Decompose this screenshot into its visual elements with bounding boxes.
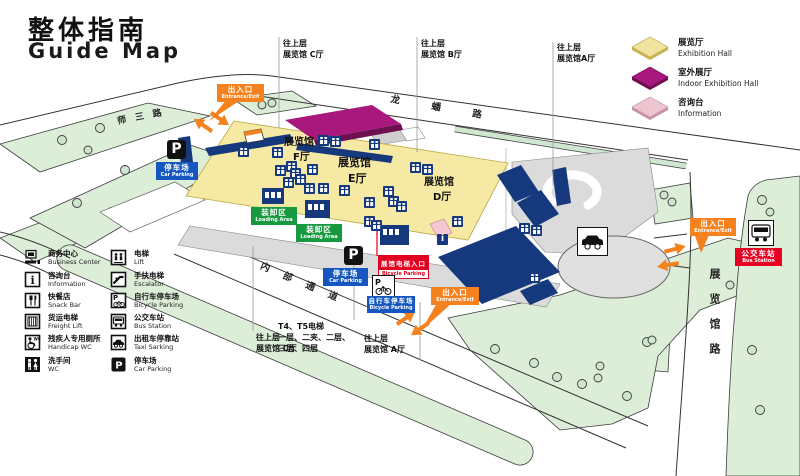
svg-text:WC: WC (34, 337, 41, 342)
facility-marker-icon (275, 165, 286, 176)
legend-label-en: Information (678, 109, 721, 119)
facility-marker-icon (318, 135, 329, 146)
snack-bar-icon (24, 292, 41, 309)
exhibition-hall-swatch (628, 34, 672, 62)
legend-item-car-parking: P 停车场Car Parking (110, 356, 171, 374)
loading-dock-icon (262, 188, 284, 204)
bus-icon (748, 220, 774, 246)
facility-marker-icon (422, 164, 433, 175)
road-label-zhanlanguanlu: 展览馆路 (706, 268, 722, 368)
car-icon (577, 227, 608, 256)
legend-item-bus-station: 公交车站Bus Station (110, 313, 171, 331)
legend-item-bicycle-parking: P 自行车停车场Bicycle Parking (110, 292, 183, 310)
hall-label-e: 展览馆 E厅 (338, 154, 371, 186)
information-swatch (628, 94, 672, 122)
freight-lift-icon (24, 313, 41, 330)
roundabout (558, 236, 670, 298)
car-parking-icon: P (110, 356, 127, 373)
bus-station-icon (110, 313, 127, 330)
legend-item-escalator: 手扶电梯Escalator (110, 271, 164, 289)
facility-marker-icon (371, 220, 382, 231)
car-parking-sign-center: 停车场 Car Parking (323, 268, 368, 286)
legend-item-business-center: 商务中心Business Center (24, 249, 101, 267)
facility-marker-icon (410, 162, 421, 173)
legend-label-en: Indoor Exhibition Hall (678, 79, 758, 89)
svg-text:i: i (31, 274, 35, 287)
facility-marker-icon (318, 183, 329, 194)
information-marker-icon: i (437, 234, 448, 245)
legend-label-zh: 咨询台 (678, 98, 721, 109)
loading-area-sign-center: 装卸区 Loading Area (296, 224, 342, 242)
upper-label-a-top: 往上层 展览馆A厅 (557, 42, 595, 64)
loading-dock-icon (305, 200, 330, 218)
bicycle-parking-icon: P (372, 275, 395, 298)
hall-label-d: 展览馆 D厅 (424, 173, 454, 203)
facility-marker-icon (330, 136, 341, 147)
facility-marker-icon (369, 139, 380, 150)
facility-marker-icon (452, 216, 463, 227)
lift-icon (110, 249, 127, 266)
legend-item-lift: 电梯Lift (110, 249, 149, 267)
facility-marker-icon (272, 147, 283, 158)
information-icon: i (24, 271, 41, 288)
entrance-sign-east: 出入口 Entrance/Exit (690, 218, 736, 236)
upper-label-a-bottom: 往上层 展览馆 A厅 (364, 333, 405, 355)
legend-item-handicap-wc: WC 残疾人专用厕所Handicap WC (24, 334, 101, 352)
legend-item-outdoor-exhibition: 室外展厅 Indoor Exhibition Hall (628, 64, 758, 92)
escalator-icon (110, 271, 127, 288)
legend-item-wc: 洗手间WC (24, 356, 71, 374)
legend-item-snack-bar: 快餐店Snack Bar (24, 292, 81, 310)
parking-p-sign: P (344, 246, 363, 265)
facility-marker-icon (307, 164, 318, 175)
facility-marker-icon (519, 223, 530, 234)
wc-icon (24, 356, 41, 373)
facility-marker-icon (364, 197, 375, 208)
legend-item-information: i 咨询台Information (24, 271, 86, 289)
upper-label-c-top: 往上层 展览馆 C厅 (283, 38, 324, 60)
legend-item-exhibition-hall: 展览厅 Exhibition Hall (628, 34, 732, 62)
legend-label-zh: 展览厅 (678, 38, 732, 49)
elevator-note: T4、T5电梯 一层、二夹、二层、 三层、四层 (278, 321, 350, 354)
business-center-icon (24, 249, 41, 266)
facility-marker-icon (238, 146, 249, 157)
guide-map-page: 整体指南 Guide Map 展览厅 Exhibition Hall 室外展厅 … (0, 0, 800, 476)
outdoor-exhibition-swatch (628, 64, 672, 92)
legend-label-zh: 室外展厅 (678, 68, 758, 79)
svg-text:P: P (375, 278, 381, 287)
legend-item-freight-lift: 货运电梯Freight Lift (24, 313, 83, 331)
page-title-en: Guide Map (28, 39, 181, 63)
parking-p-sign: P (167, 140, 186, 159)
car-parking-sign-west: 停车场 Car Parking (156, 162, 198, 180)
facility-marker-icon (531, 225, 542, 236)
facility-marker-icon (304, 183, 315, 194)
hall-label-f: 展览馆 F厅 (284, 133, 314, 163)
bus-station-sign: 公交车站 Bus Station (735, 248, 782, 266)
handicap-wc-icon: WC (24, 334, 41, 351)
loading-area-sign-west: 装卸区 Loading Area (251, 207, 297, 225)
legend-item-information: 咨询台 Information (628, 94, 721, 122)
facility-marker-icon (529, 272, 540, 283)
svg-text:P: P (115, 361, 122, 372)
legend-label-en: Exhibition Hall (678, 49, 732, 59)
facility-marker-icon (396, 201, 407, 212)
taxi-icon (110, 334, 127, 351)
svg-text:P: P (113, 294, 118, 302)
facility-marker-icon (283, 177, 294, 188)
entrance-sign-northwest: 出入口 Entrance/Exit (217, 84, 264, 102)
legend-item-taxi: 出租车停靠站Taxi Sarking (110, 334, 179, 352)
bicycle-parking-sign: 自行车停车场 Bicycle Parking (367, 296, 415, 313)
loading-dock-icon (380, 225, 409, 245)
facility-marker-icon (339, 185, 350, 196)
upper-label-b-top: 往上层 展览馆 B厅 (421, 38, 462, 60)
entrance-sign-south: 出入口 Entrance/Exit (431, 287, 479, 305)
bicycle-parking-legend-icon: P (110, 292, 127, 309)
